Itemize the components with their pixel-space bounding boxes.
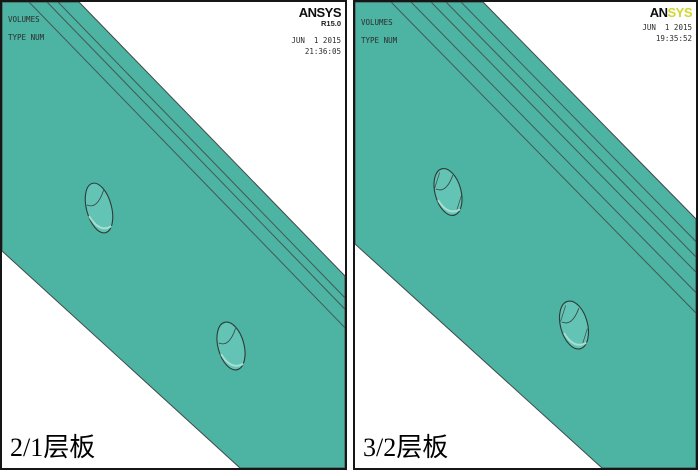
ansys-logo-right: ANSYS [650, 5, 692, 20]
volumes-label-right: VOLUMES [361, 19, 393, 27]
time-left: 21:36:05 [305, 47, 341, 56]
timestamp-right: JUN 1 201519:35:52 [642, 22, 692, 45]
plate-band-right [355, 2, 696, 468]
ansys-viewport-panel-right[interactable]: VOLUMES TYPE NUM ANSYS JUN 1 201519:35:5… [353, 0, 698, 470]
caption-left: 2/1层板 [10, 434, 95, 463]
graphics-viewport-left[interactable] [2, 2, 345, 468]
caption-right: 3/2层板 [363, 434, 448, 463]
type-num-label-left: TYPE NUM [8, 34, 44, 42]
ansys-viewport-panel-left[interactable]: VOLUMES TYPE NUM ANSYS R15.0 JUN 1 20152… [0, 0, 347, 470]
time-right: 19:35:52 [656, 34, 692, 43]
ansys-logo-left-black: ANSYS [299, 5, 341, 20]
ansys-logo-right-yellow: SYS [667, 5, 692, 20]
date-left: JUN 1 2015 [291, 36, 341, 45]
date-right: JUN 1 2015 [642, 23, 692, 32]
ansys-version-left: R15.0 [321, 19, 341, 28]
plate-band-left [2, 2, 345, 468]
type-num-label-right: TYPE NUM [361, 37, 397, 45]
timestamp-left: JUN 1 201521:36:05 [291, 35, 341, 58]
figure-root: VOLUMES TYPE NUM ANSYS R15.0 JUN 1 20152… [0, 0, 700, 474]
ansys-logo-right-black: AN [650, 5, 668, 20]
graphics-viewport-right[interactable] [355, 2, 696, 468]
ansys-logo-left: ANSYS [299, 5, 341, 20]
volumes-label-left: VOLUMES [8, 16, 40, 24]
